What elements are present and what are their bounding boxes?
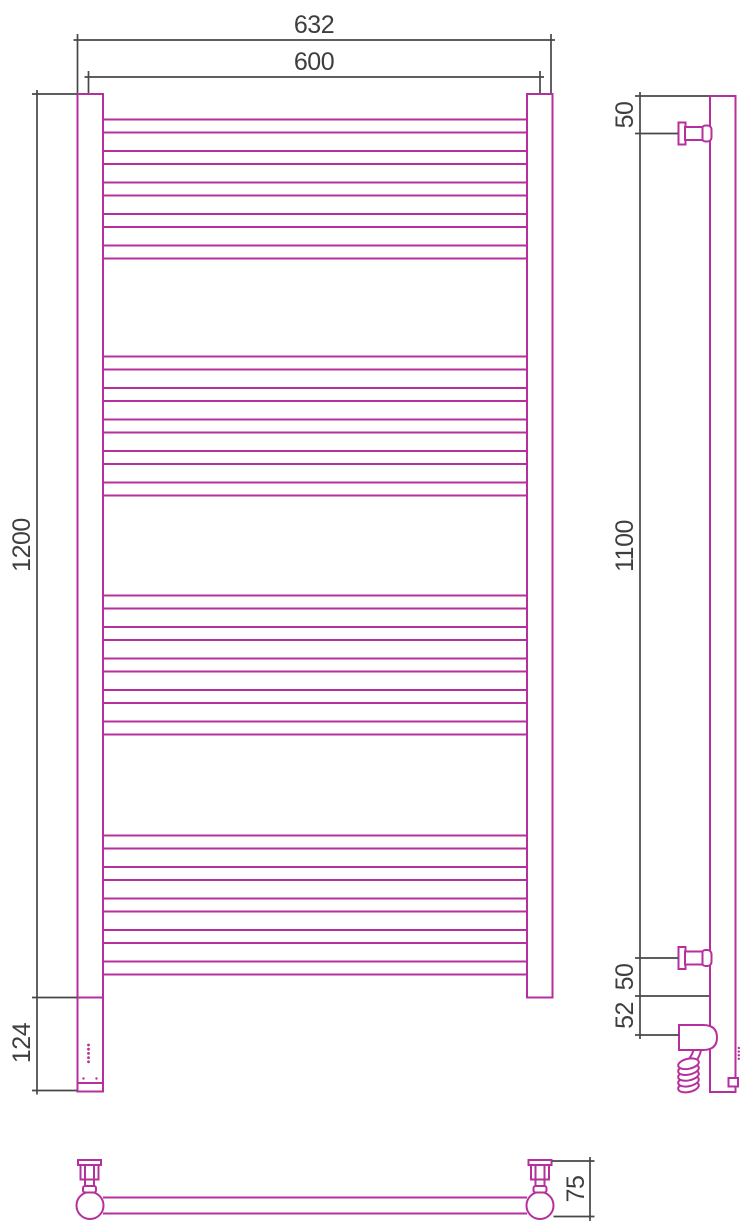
led-dot (87, 1056, 90, 1059)
rail-tube (98, 962, 533, 975)
front-left-foot (78, 1083, 104, 1092)
drawing-canvas: 632 600 1200 124 50 1100 50 52 75 (0, 0, 750, 1231)
side-cable-coil (677, 1057, 700, 1094)
dim-label-overall-height: 1200 (8, 518, 36, 572)
dim-label-wall-depth: 75 (562, 1176, 590, 1203)
rail-tube (98, 451, 533, 464)
technical-drawing: 632 600 1200 124 50 1100 50 52 75 (0, 0, 750, 1231)
bracket-nut (83, 1186, 96, 1193)
side-wall-bracket-top (679, 123, 712, 145)
bracket-cup (81, 1165, 99, 1180)
rail-tube (98, 183, 533, 196)
front-view (78, 94, 553, 1092)
bracket-barrel (685, 127, 703, 140)
detail-dot (738, 1047, 740, 1049)
side-collector-tube (710, 96, 736, 1092)
front-rails (98, 120, 533, 975)
bracket-wall-plate (78, 1160, 101, 1165)
led-dot (87, 1048, 90, 1051)
bottom-left-collector-section (77, 1192, 104, 1219)
rail-tube (98, 388, 533, 401)
rail-tube (98, 596, 533, 609)
bottom-wall-bracket-left (78, 1160, 101, 1193)
bracket-nut (534, 1186, 547, 1193)
rail-tube (98, 214, 533, 227)
side-foot-step (729, 1078, 739, 1087)
dim-label-center-width: 600 (294, 48, 334, 76)
rail-tube (98, 930, 533, 943)
dim-label-bottom-bracket-offset: 50 (611, 964, 639, 991)
rail-tube (98, 483, 533, 496)
side-detail-dots (738, 1047, 740, 1060)
led-dot (87, 1044, 90, 1047)
rail-tube (98, 151, 533, 164)
rail-tube (98, 899, 533, 912)
front-left-collector (78, 94, 104, 1083)
bottom-view (77, 1160, 554, 1219)
detail-dot (738, 1050, 740, 1052)
rail-tube (98, 867, 533, 880)
dim-label-bracket-span: 1100 (611, 520, 639, 572)
bracket-barrel (685, 952, 703, 965)
side-heating-element-housing (679, 1025, 717, 1050)
rail-tube (98, 836, 533, 849)
side-wall-bracket-bottom (679, 947, 712, 969)
dim-label-overall-width: 632 (294, 11, 334, 39)
led-dot (87, 1060, 90, 1063)
rail-tube (98, 722, 533, 735)
rail-tube (98, 627, 533, 640)
bottom-wall-bracket-right (529, 1160, 552, 1193)
rail-tube (98, 690, 533, 703)
rail-tube (98, 246, 533, 259)
bracket-cup (531, 1165, 549, 1180)
bottom-right-collector-section (527, 1192, 554, 1219)
dim-label-lower-section-height: 124 (8, 1022, 36, 1063)
front-right-collector (527, 94, 553, 998)
rail-tube (98, 357, 533, 370)
foot-screw-dot (95, 1077, 97, 1079)
led-dot (87, 1052, 90, 1055)
bracket-wall-plate (529, 1160, 552, 1165)
side-view (677, 96, 740, 1094)
detail-dot (738, 1058, 740, 1060)
rail-tube (98, 120, 533, 133)
rail-tube (98, 420, 533, 433)
rail-tube (98, 659, 533, 672)
dim-label-heater-offset: 52 (611, 1002, 639, 1029)
dim-label-top-bracket-offset: 50 (611, 102, 639, 129)
detail-dot (738, 1054, 740, 1056)
foot-screw-dot (82, 1077, 84, 1079)
